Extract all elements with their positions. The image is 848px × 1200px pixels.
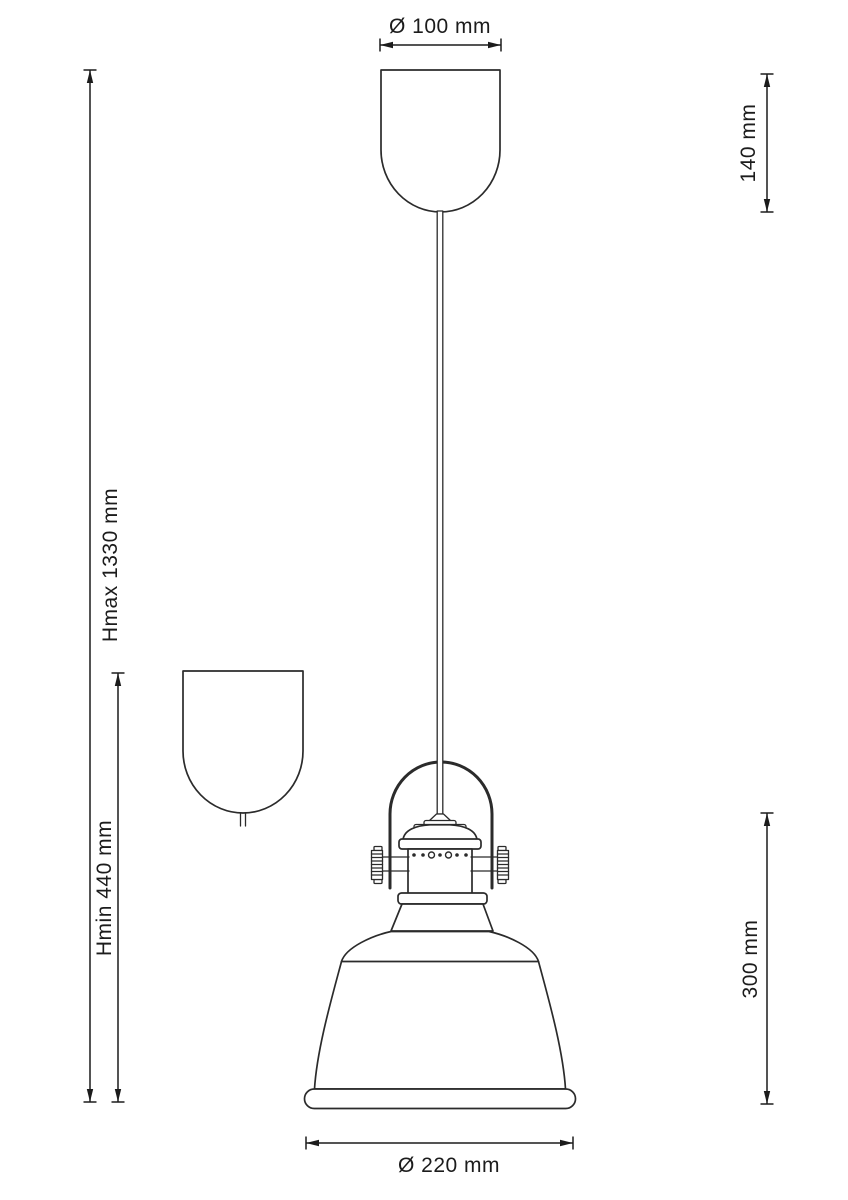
dim-canopy-height: 140 mm <box>737 74 774 212</box>
dim-canopy-diameter: Ø 100 mm <box>380 15 501 52</box>
lamp-head <box>372 814 509 931</box>
shade-rim <box>305 1089 576 1109</box>
vent-hole <box>429 852 435 858</box>
canopy-detail-view <box>183 671 303 826</box>
max-height-label: Hmax 1330 mm <box>99 488 122 642</box>
dimension-drawing-page: Ø 100 mm Hmax 1330 mm Hmin 440 mm 140 mm <box>0 0 848 1200</box>
shade-height-label: 300 mm <box>739 920 762 999</box>
vent-hole <box>421 853 425 857</box>
socket-flange <box>398 893 487 904</box>
dim-shade-height: 300 mm <box>739 813 774 1104</box>
arrow-right-icon <box>560 1140 573 1146</box>
arrow-left-icon <box>306 1140 319 1146</box>
pendant-lamp-diagram: Ø 100 mm Hmax 1330 mm Hmin 440 mm 140 mm <box>0 0 848 1200</box>
shade-diameter-label: Ø 220 mm <box>398 1154 500 1177</box>
shade-neck <box>391 904 493 931</box>
arrow-left-icon <box>380 42 393 48</box>
socket-collar <box>399 839 481 849</box>
arrow-down-icon <box>87 1089 93 1102</box>
ceiling-canopy <box>381 70 500 212</box>
dim-min-height: Hmin 440 mm <box>93 673 125 1102</box>
arrow-up-icon <box>87 70 93 83</box>
vent-hole <box>455 853 459 857</box>
knurl-ridges <box>372 854 383 875</box>
arrow-up-icon <box>764 813 770 826</box>
vent-hole <box>464 853 468 857</box>
vent-hole <box>412 853 416 857</box>
vent-hole <box>438 853 442 857</box>
canopy-height-label: 140 mm <box>737 104 760 183</box>
socket-dome-cap <box>403 825 477 840</box>
min-height-label: Hmin 440 mm <box>93 820 116 956</box>
dim-shade-diameter: Ø 220 mm <box>306 1137 573 1178</box>
thumb-screw-left <box>372 847 383 884</box>
arrow-up-icon <box>115 673 121 686</box>
arrow-down-icon <box>115 1089 121 1102</box>
canopy-diameter-label: Ø 100 mm <box>389 15 491 38</box>
suspension-cord <box>437 211 443 814</box>
arrow-right-icon <box>488 42 501 48</box>
shade-body <box>315 932 566 1090</box>
ceiling-canopy-small <box>183 671 303 813</box>
vent-hole <box>446 852 452 858</box>
arrow-up-icon <box>764 74 770 87</box>
thumb-screw-right <box>498 847 509 884</box>
knurl-ridges <box>498 854 509 875</box>
lamp-shade <box>305 932 576 1109</box>
arrow-down-icon <box>764 199 770 212</box>
arrow-down-icon <box>764 1091 770 1104</box>
